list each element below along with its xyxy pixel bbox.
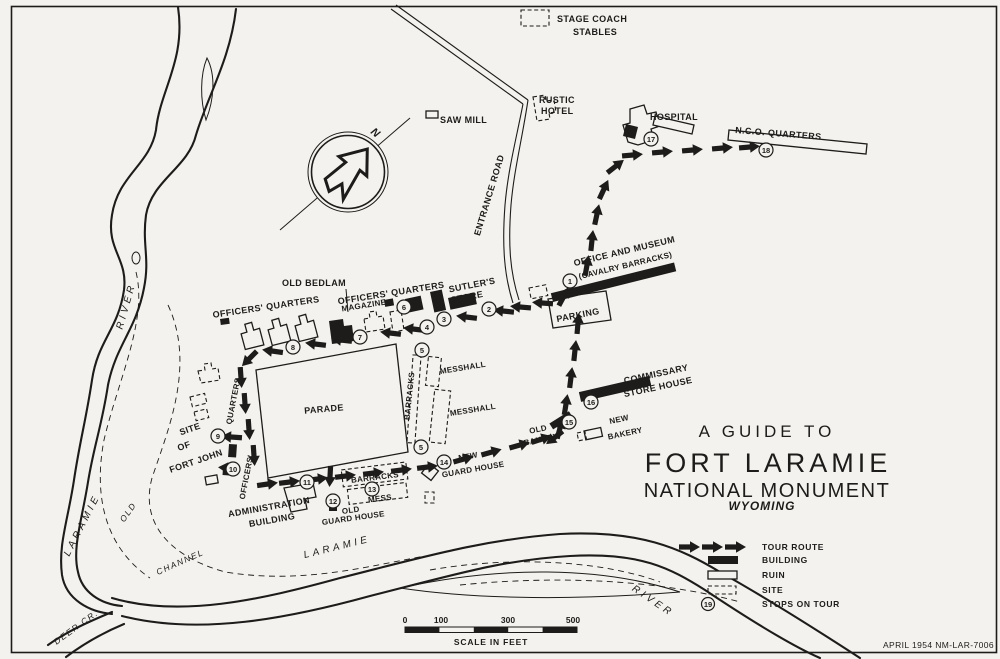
scale-tick-300: 300	[501, 615, 515, 625]
tour-stop-number: 2	[487, 305, 491, 314]
tour-stop-number: 13	[368, 485, 376, 494]
ruin-saw-mill	[426, 111, 438, 118]
tour-stop-number: 6	[402, 303, 406, 312]
fort-laramie-guide-map: N	[0, 0, 1000, 659]
legend-stop-number: 19	[704, 600, 712, 609]
label-stage-coach-1: STAGE COACH	[557, 14, 627, 24]
scale-tick-500: 500	[566, 615, 580, 625]
legend-ruin-swatch	[708, 571, 737, 579]
legend-building-label: BUILDING	[762, 555, 808, 565]
tour-stop-number: 8	[291, 343, 295, 352]
legend-stops-label: STOPS ON TOUR	[762, 599, 840, 609]
tour-stop-number: 10	[229, 465, 237, 474]
label-rustic-2: HOTEL	[541, 106, 574, 116]
tour-stop-number: 15	[565, 418, 573, 427]
tour-stop-number: 3	[442, 315, 446, 324]
tour-stop-number: 12	[329, 497, 337, 506]
legend-building-swatch	[708, 556, 738, 564]
map-title-line2: FORT LARAMIE	[645, 448, 892, 478]
legend-tour-route-label: TOUR ROUTE	[762, 542, 824, 552]
scale-tick-0: 0	[403, 615, 408, 625]
tour-stop-number: 5	[419, 443, 423, 452]
tour-stop-number: 16	[587, 398, 595, 407]
tour-stop-number: 17	[647, 135, 655, 144]
scale-tick-100: 100	[434, 615, 448, 625]
map-stamp: APRIL 1954 NM-LAR-7006	[883, 640, 994, 650]
scale-caption: SCALE IN FEET	[454, 637, 528, 647]
ruin-fort-john-area	[205, 475, 218, 485]
tour-stop-number: 1	[568, 277, 572, 286]
label-old-bedlam: OLD BEDLAM	[282, 278, 346, 288]
tour-stop-number: 11	[303, 478, 311, 487]
map-page: N	[0, 0, 1000, 659]
tour-stop-number: 18	[762, 146, 770, 155]
building-small-west	[220, 318, 230, 325]
label-hospital: HOSPITAL	[650, 112, 698, 122]
map-title-line1: A GUIDE TO	[699, 422, 836, 441]
legend-site-label: SITE	[762, 585, 783, 595]
tour-stop-number: 5	[420, 346, 424, 355]
label-stage-coach-2: STABLES	[573, 27, 617, 37]
legend-ruin-label: RUIN	[762, 570, 785, 580]
tour-stop-number: 14	[440, 458, 449, 467]
tour-stop-number: 7	[358, 333, 362, 342]
paper-background	[0, 0, 1000, 659]
label-saw-mill: SAW MILL	[440, 115, 487, 125]
building-west-side-1	[228, 444, 237, 458]
tour-stop-number: 9	[216, 432, 220, 441]
map-title-line4: WYOMING	[729, 499, 796, 513]
label-rustic-1: RUSTIC	[539, 95, 575, 105]
